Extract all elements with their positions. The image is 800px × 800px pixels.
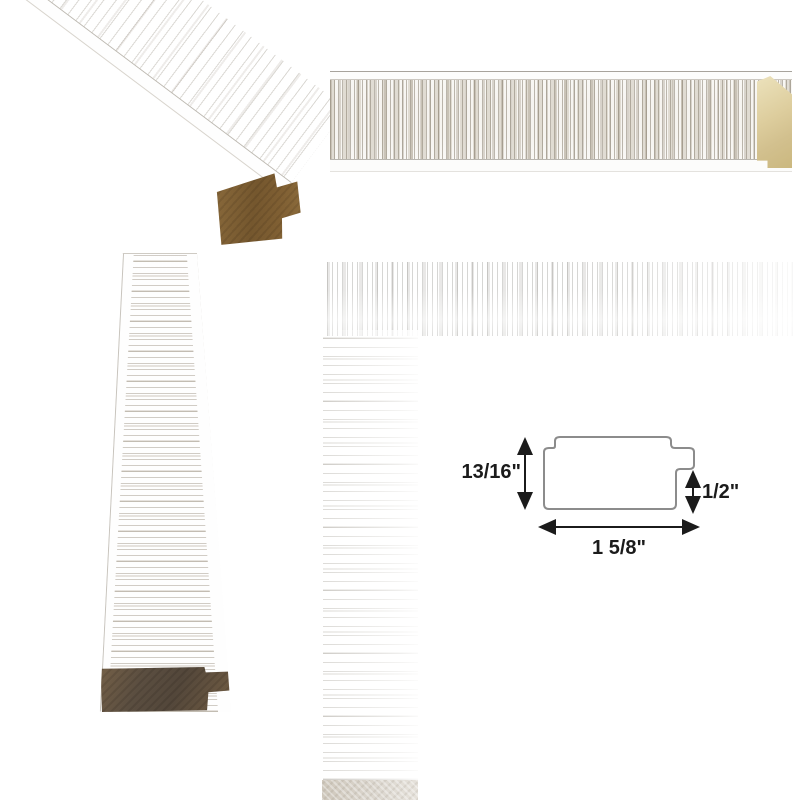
rabbet-dimension-label: 1/2" xyxy=(702,481,739,503)
dimension-diagram: 13/16" 1/2" 1 5/8" xyxy=(440,425,760,565)
moulding-product-image: 13/16" 1/2" 1 5/8" xyxy=(0,0,800,800)
frame-corner-wood-end xyxy=(322,780,418,800)
moulding-lip-edge xyxy=(330,159,792,172)
moulding-photo-horizontal-view xyxy=(330,71,792,172)
moulding-top-edge xyxy=(330,71,792,80)
moulding-textured-face xyxy=(97,254,233,712)
moulding-textured-face xyxy=(330,80,792,159)
frame-corner-photo-vertical-rail xyxy=(323,330,418,780)
moulding-profile-outline xyxy=(544,437,694,509)
moulding-textured-face xyxy=(0,0,347,183)
moulding-photo-diagonal-view xyxy=(0,0,371,221)
width-dimension-label: 1 5/8" xyxy=(592,537,646,559)
moulding-photo-vertical-view xyxy=(97,253,233,712)
height-dimension-label: 13/16" xyxy=(461,461,521,483)
frame-corner-photo-horizontal-rail xyxy=(327,262,793,336)
